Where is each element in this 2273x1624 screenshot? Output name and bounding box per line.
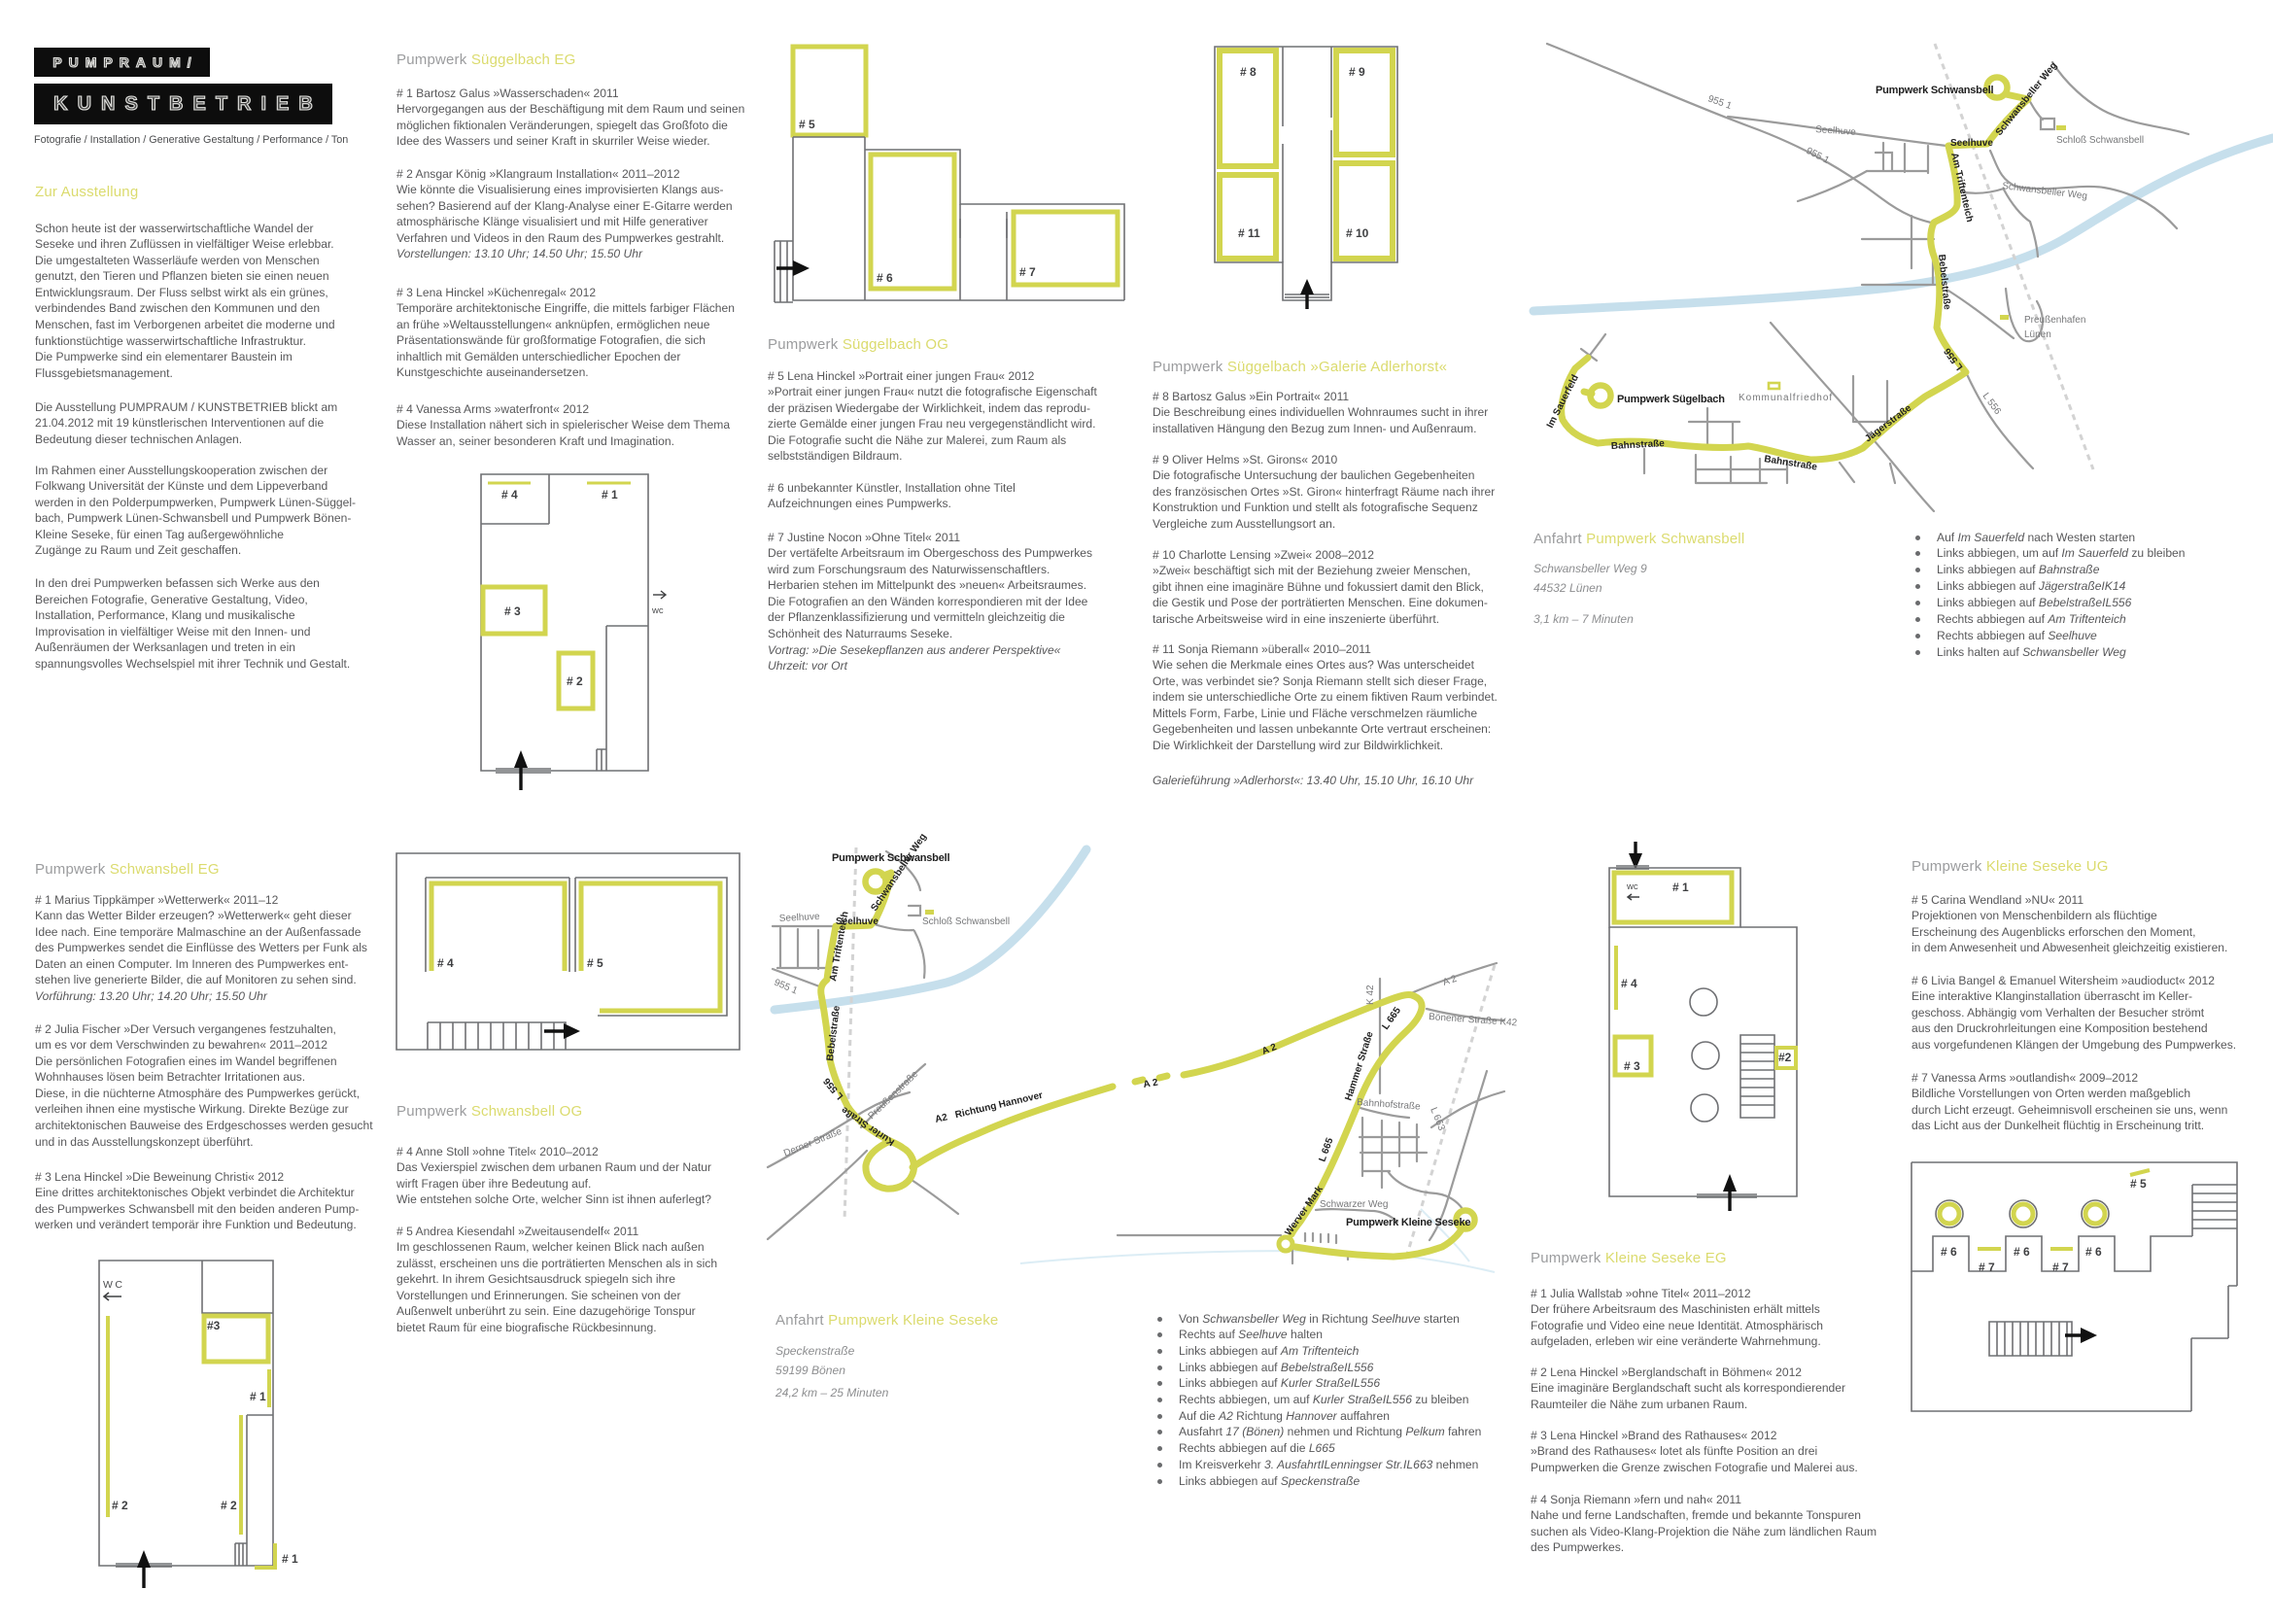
- svg-text:Schloß Schwansbell: Schloß Schwansbell: [2056, 135, 2144, 146]
- svg-text:Seelhuve: Seelhuve: [779, 912, 821, 924]
- svg-text:Preußenstraße: Preußenstraße: [866, 1069, 920, 1123]
- svg-text:Schwansbeller Weg: Schwansbeller Weg: [2002, 181, 2088, 202]
- svg-text:Pumpwerk Sügelbach: Pumpwerk Sügelbach: [1617, 394, 1725, 405]
- svg-text:Werver Mark: Werver Mark: [1283, 1184, 1326, 1238]
- svg-text:Preußenhafen: Preußenhafen: [2024, 315, 2085, 326]
- svg-text:Schwarzer Weg: Schwarzer Weg: [1320, 1199, 1388, 1210]
- svg-text:Seelhuve: Seelhuve: [1815, 124, 1857, 138]
- svg-text:Seelhuve: Seelhuve: [1950, 138, 1993, 149]
- svg-text:955 1: 955 1: [1805, 146, 1832, 166]
- svg-text:Kommunalfriedhof: Kommunalfriedhof: [1739, 393, 1833, 403]
- svg-text:Schloß Schwansbell: Schloß Schwansbell: [922, 916, 1010, 927]
- svg-text:A 2: A 2: [1143, 1077, 1159, 1090]
- svg-text:Derner Straße: Derner Straße: [782, 1126, 844, 1159]
- svg-text:A2 Richtung Hannover: A2 Richtung Hannover: [934, 1090, 1044, 1125]
- svg-text:Bahnstraße: Bahnstraße: [1611, 438, 1666, 452]
- svg-text:Pumpwerk Schwansbell: Pumpwerk Schwansbell: [1876, 85, 1993, 96]
- svg-text:Bönener Straße K42: Bönener Straße K42: [1429, 1012, 1518, 1028]
- svg-text:L 665: L 665: [1380, 1005, 1403, 1031]
- svg-text:Jägerstraße: Jägerstraße: [1863, 402, 1913, 444]
- svg-text:Pumpwerk Schwansbell: Pumpwerk Schwansbell: [832, 852, 949, 864]
- svg-text:K 42: K 42: [1365, 985, 1376, 1005]
- svg-text:Schwansbeller Weg: Schwansbeller Weg: [1994, 60, 2060, 138]
- svg-text:955 1: 955 1: [1706, 93, 1734, 112]
- svg-text:955 1: 955 1: [773, 978, 800, 997]
- svg-text:Pumpwerk Kleine Seseke: Pumpwerk Kleine Seseke: [1346, 1217, 1470, 1228]
- svg-text:L 663: L 663: [1428, 1106, 1447, 1132]
- svg-text:Lünen: Lünen: [2024, 329, 2051, 340]
